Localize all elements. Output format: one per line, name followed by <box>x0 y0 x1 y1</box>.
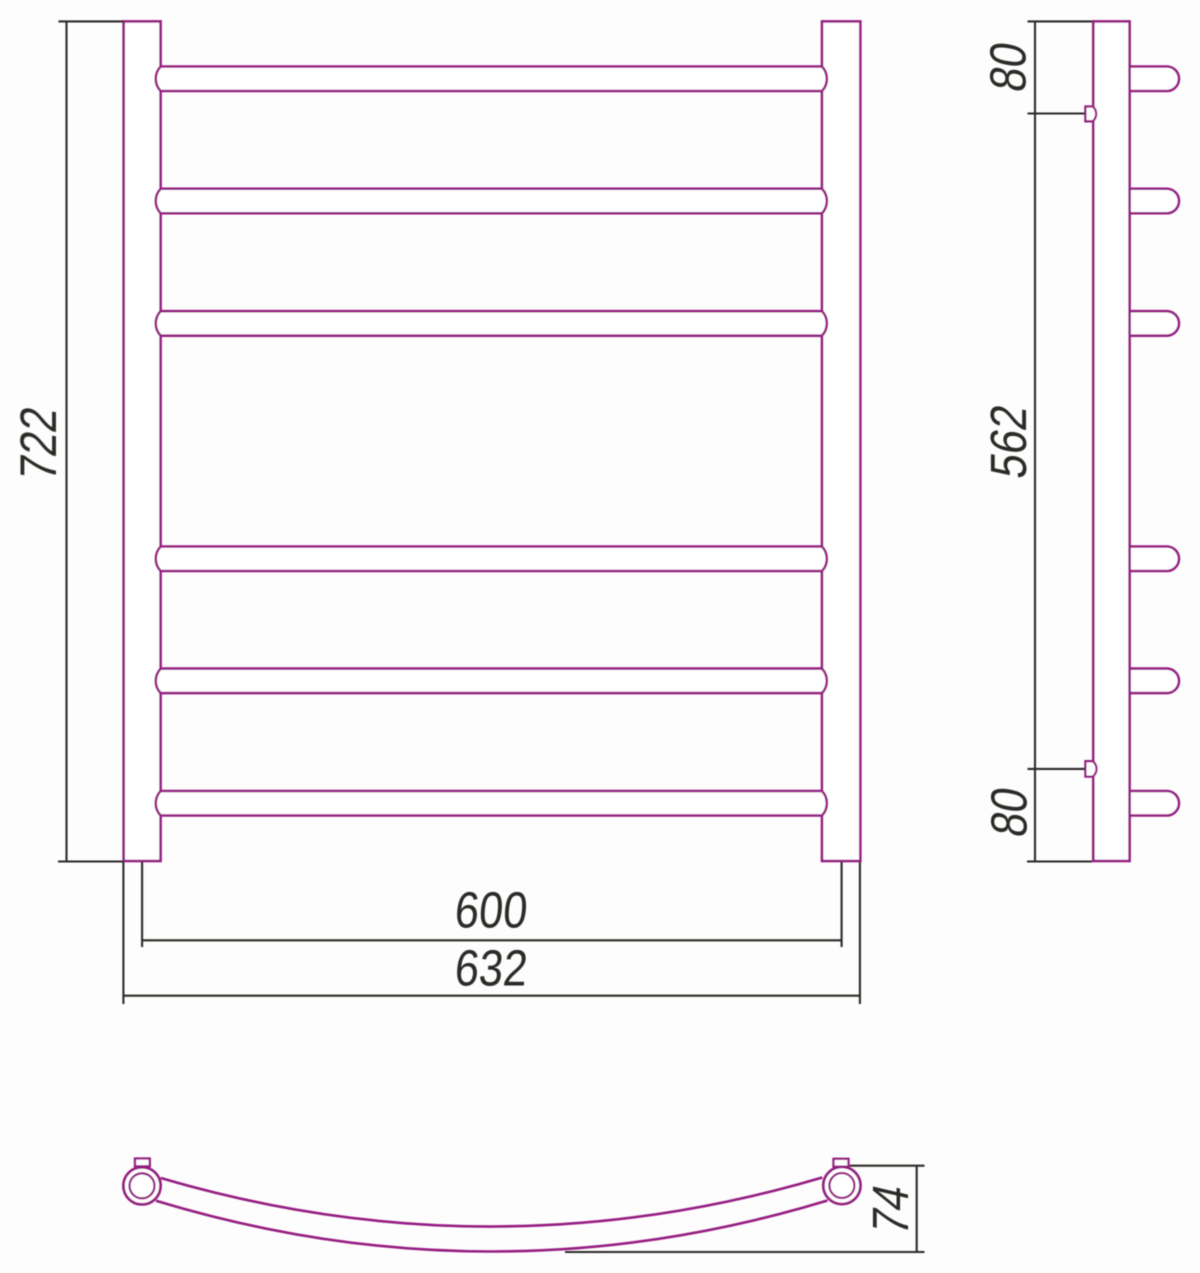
svg-text:632: 632 <box>453 940 530 997</box>
svg-text:600: 600 <box>453 883 530 940</box>
svg-text:74: 74 <box>864 1179 920 1240</box>
svg-text:80: 80 <box>982 783 1039 840</box>
svg-text:80: 80 <box>980 38 1037 95</box>
svg-text:722: 722 <box>11 403 68 484</box>
svg-text:562: 562 <box>981 401 1038 482</box>
